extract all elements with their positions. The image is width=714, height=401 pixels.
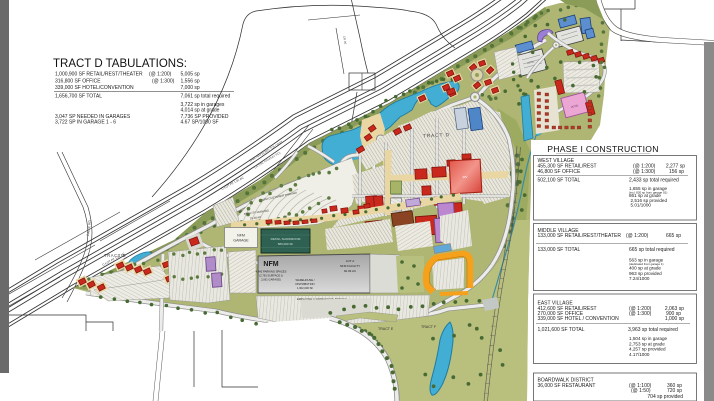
svg-text:2,061 GARAGE): 2,061 GARAGE)	[261, 278, 281, 282]
svg-text:665 sp: 665 sp	[666, 233, 681, 239]
svg-text:4.17/1000: 4.17/1000	[629, 352, 650, 357]
svg-text:400 sp at grade: 400 sp at grade	[629, 266, 661, 271]
svg-text:156 sp: 156 sp	[669, 169, 684, 175]
svg-text:4,842 PARKING SPACES: 4,842 PARKING SPACES	[256, 270, 287, 274]
svg-text:316,800 SF OFFICE: 316,800 SF OFFICE	[55, 78, 101, 84]
svg-text:DISTRIBUTION: DISTRIBUTION	[296, 282, 315, 286]
svg-text:PHASE I CONSTRUCTION: PHASE I CONSTRUCTION	[547, 144, 659, 154]
svg-text:RETAIL SHOWROOM: RETAIL SHOWROOM	[271, 237, 301, 241]
svg-text:963 sp provided: 963 sp provided	[629, 271, 662, 276]
svg-text:LOT A: LOT A	[346, 259, 354, 263]
svg-text:665 sp total required: 665 sp total required	[629, 247, 675, 253]
svg-text:1,302,000 SF: 1,302,000 SF	[297, 286, 313, 290]
svg-text:4,014 sp at grade: 4,014 sp at grade	[181, 108, 220, 114]
svg-text:NFM: NFM	[263, 261, 278, 268]
svg-text:339,000 SF HOTEL/CONVENTION: 339,000 SF HOTEL/CONVENTION	[55, 85, 134, 91]
svg-text:5.01/1000: 5.01/1000	[631, 202, 652, 207]
svg-text:GARAGE: GARAGE	[233, 239, 249, 243]
svg-text:7,061 sp total required: 7,061 sp total required	[181, 94, 231, 100]
svg-text:36,000 SF RESTAURANT: 36,000 SF RESTAURANT	[538, 383, 596, 389]
svg-text:1,656,700 SF TOTAL: 1,656,700 SF TOTAL	[55, 94, 102, 100]
svg-text:3,963 sp total required: 3,963 sp total required	[628, 327, 678, 333]
svg-text:3,722 SP IN GARAGE 1 - 6: 3,722 SP IN GARAGE 1 - 6	[55, 120, 116, 126]
svg-text:502,100 SF TOTAL: 502,100 SF TOTAL	[538, 178, 581, 184]
svg-text:(@ 1:300): (@ 1:300)	[633, 169, 656, 175]
svg-text:TRACT F: TRACT F	[421, 325, 437, 329]
svg-text:(@ 1:300): (@ 1:300)	[152, 78, 175, 84]
svg-text:7.24/1000: 7.24/1000	[629, 276, 650, 281]
svg-text:(@ 1:300): (@ 1:300)	[629, 311, 652, 317]
svg-text:TRACT D: TRACT D	[104, 253, 126, 258]
svg-text:(2,781 SURFACE &: (2,781 SURFACE &	[259, 274, 283, 278]
svg-text:1,000,900 SF RETAIL/REST/THEAT: 1,000,900 SF RETAIL/REST/THEATER	[55, 72, 143, 78]
svg-text:1,021,600 SF TOTAL: 1,021,600 SF TOTAL	[538, 327, 585, 333]
svg-text:92.09 AC: 92.09 AC	[344, 269, 357, 273]
svg-text:1,556 sp: 1,556 sp	[181, 78, 200, 84]
svg-text:TRACT D TABULATIONS:: TRACT D TABULATIONS:	[53, 58, 187, 70]
svg-text:2,753 sp at grade: 2,753 sp at grade	[629, 341, 665, 346]
svg-text:2,433 sp total required: 2,433 sp total required	[629, 178, 679, 184]
svg-text:580,000 SF: 580,000 SF	[278, 242, 294, 246]
svg-text:7,000 sp: 7,000 sp	[181, 85, 200, 91]
svg-text:704 sp provided: 704 sp provided	[647, 394, 683, 400]
svg-text:WAREHOUSE /: WAREHOUSE /	[295, 278, 314, 282]
svg-text:NFM FACILITY: NFM FACILITY	[340, 264, 360, 268]
svg-text:(@ 1:200): (@ 1:200)	[626, 233, 649, 239]
svg-text:133,000 SF TOTAL: 133,000 SF TOTAL	[538, 247, 581, 253]
svg-text:NFM: NFM	[237, 234, 245, 238]
svg-text:339,000 SF HOTEL / CONVENTION: 339,000 SF HOTEL / CONVENTION	[538, 316, 620, 322]
svg-text:1,000 sp: 1,000 sp	[665, 316, 684, 322]
svg-text:(@ 1:200): (@ 1:200)	[149, 72, 172, 78]
svg-text:133,000 SF RETAIL/REST/THEATER: 133,000 SF RETAIL/REST/THEATER	[538, 233, 622, 239]
svg-text:WV: WV	[463, 175, 468, 179]
svg-text:4.67 SP/1000 SF: 4.67 SP/1000 SF	[181, 120, 219, 126]
svg-text:5,005 sp: 5,005 sp	[181, 72, 200, 78]
svg-text:46,800 SF OFFICE: 46,800 SF OFFICE	[538, 169, 581, 175]
svg-text:TRACT E: TRACT E	[378, 327, 394, 331]
